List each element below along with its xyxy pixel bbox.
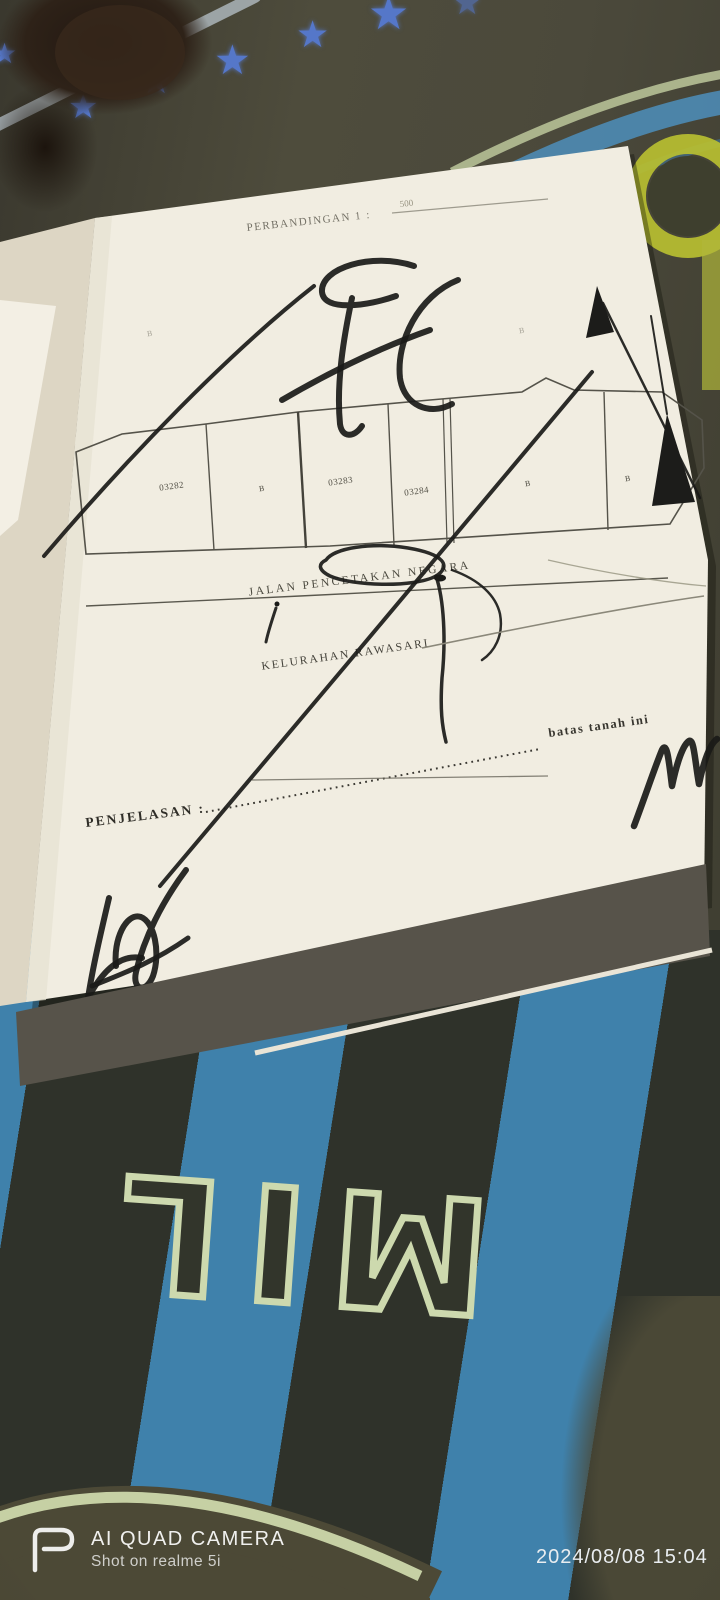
timestamp: 2024/08/08 15:04 [536, 1546, 708, 1569]
watermark-texts: AI QUAD CAMERA Shot on realme 5i [91, 1528, 285, 1571]
photo-canvas: ★ ★ ★ ★ ★ ★ ★ MIL [0, 0, 720, 1600]
scale-value: 500 [399, 198, 414, 209]
realme-logo-icon [28, 1524, 78, 1574]
pen-dot [275, 602, 280, 607]
watermark-title: AI QUAD CAMERA [91, 1528, 285, 1551]
survey-document: PERBANDINGAN 1 : 500 B B 03282 B 03283 0… [0, 0, 720, 1600]
camera-watermark: AI QUAD CAMERA Shot on realme 5i [28, 1524, 285, 1574]
watermark-subtitle: Shot on realme 5i [91, 1553, 285, 1571]
